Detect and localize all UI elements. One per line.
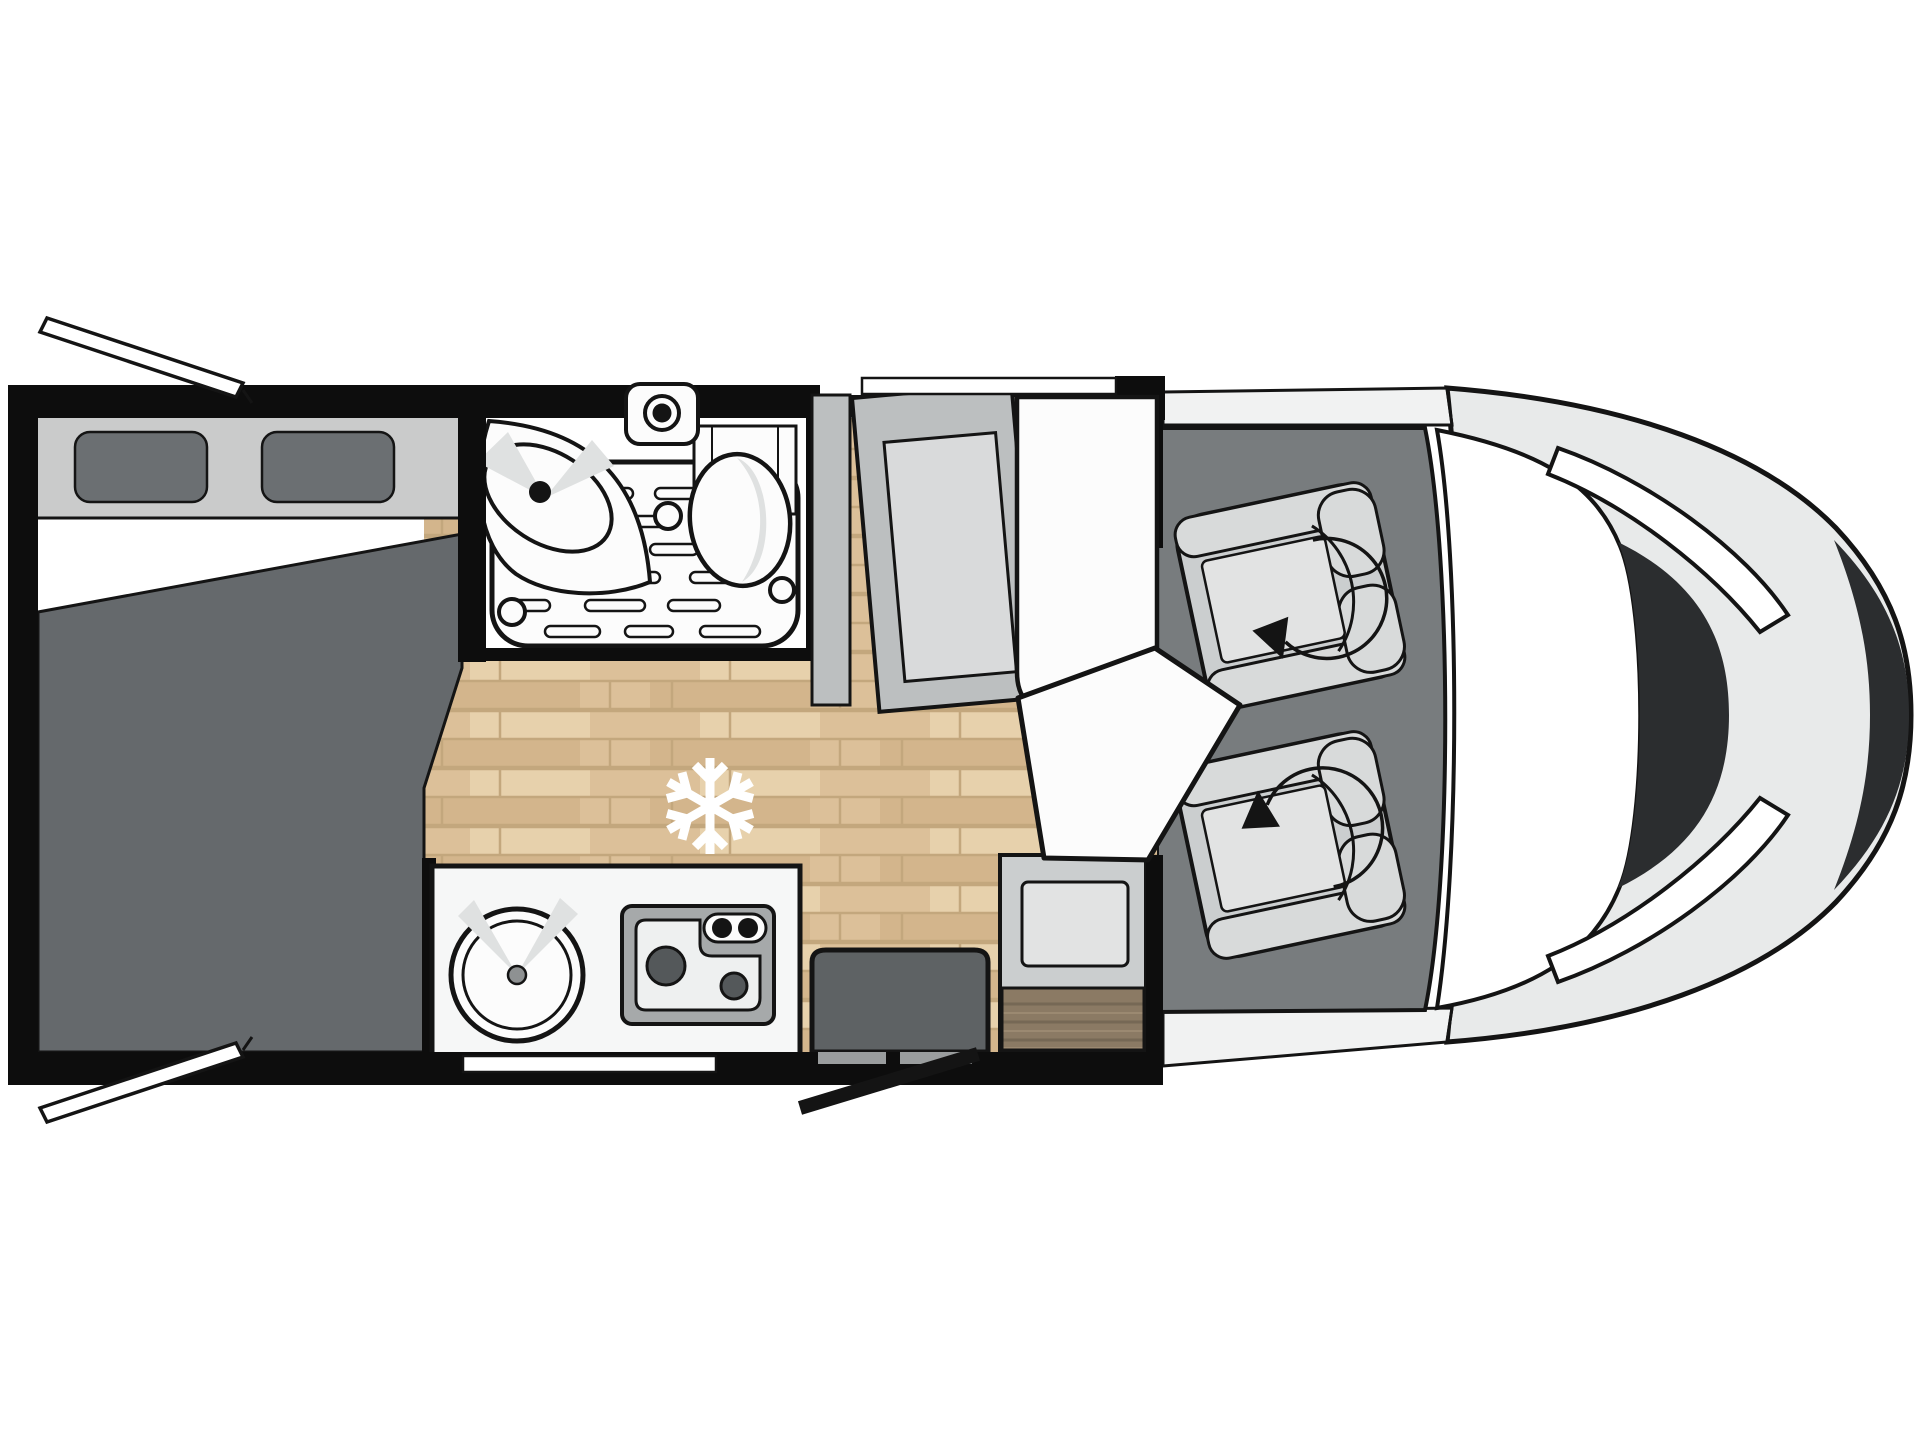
bench-wood-top	[1002, 988, 1144, 1050]
floorplan-page	[0, 0, 1920, 1440]
wardrobe-door	[852, 384, 1039, 712]
stove-knob	[738, 918, 758, 938]
round-kitchen-sink	[451, 898, 583, 1041]
bathroom	[465, 414, 810, 654]
kitchen-sink-drain	[508, 966, 526, 984]
rear-bed	[38, 418, 462, 1052]
pillow-left	[75, 432, 207, 502]
two-burner-stove	[622, 906, 774, 1024]
bench-cushion	[1022, 882, 1128, 966]
dinette-bench	[1000, 855, 1146, 1051]
kitchen-window	[463, 1056, 716, 1072]
bathroom-wall-left	[458, 385, 486, 662]
wall-stub-right	[1146, 855, 1163, 1085]
floorplan-canvas	[0, 0, 1920, 1440]
shower-drain	[499, 599, 525, 625]
sink-drain	[529, 481, 551, 503]
wardrobe-door-panel	[884, 433, 1016, 682]
wall-left	[8, 385, 38, 1085]
wardrobe-partition	[812, 395, 850, 705]
stove-knob	[712, 918, 732, 938]
shower-drain	[655, 503, 681, 529]
burner-large	[647, 947, 685, 985]
kitchen	[422, 858, 800, 1058]
burner-small	[721, 973, 747, 999]
entry-step	[812, 950, 988, 1052]
mattress	[38, 534, 462, 1052]
passenger-swivel-seat	[1172, 479, 1410, 713]
pillow-right	[262, 432, 394, 502]
faucet	[626, 384, 698, 444]
top-wall-window	[862, 378, 1116, 394]
side-band-top	[1163, 388, 1452, 425]
shower-drain	[770, 578, 794, 602]
bathroom-wall-bottom	[458, 648, 818, 661]
door-sill-segment	[818, 1052, 886, 1064]
